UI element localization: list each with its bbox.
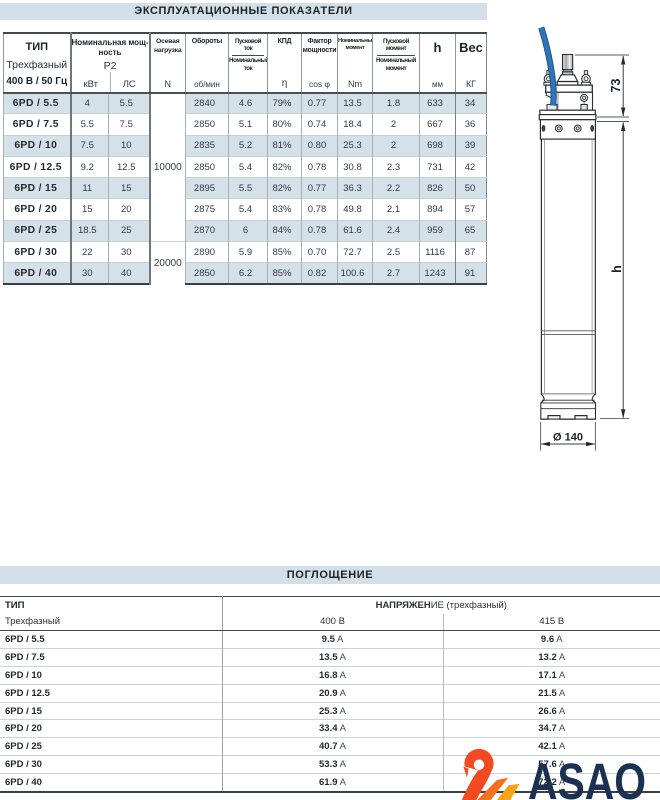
svg-text:ASAO: ASAO [528, 753, 646, 800]
svg-text:Ø 140: Ø 140 [553, 432, 583, 444]
svg-text:73: 73 [609, 79, 623, 93]
svg-text:h: h [610, 265, 624, 273]
